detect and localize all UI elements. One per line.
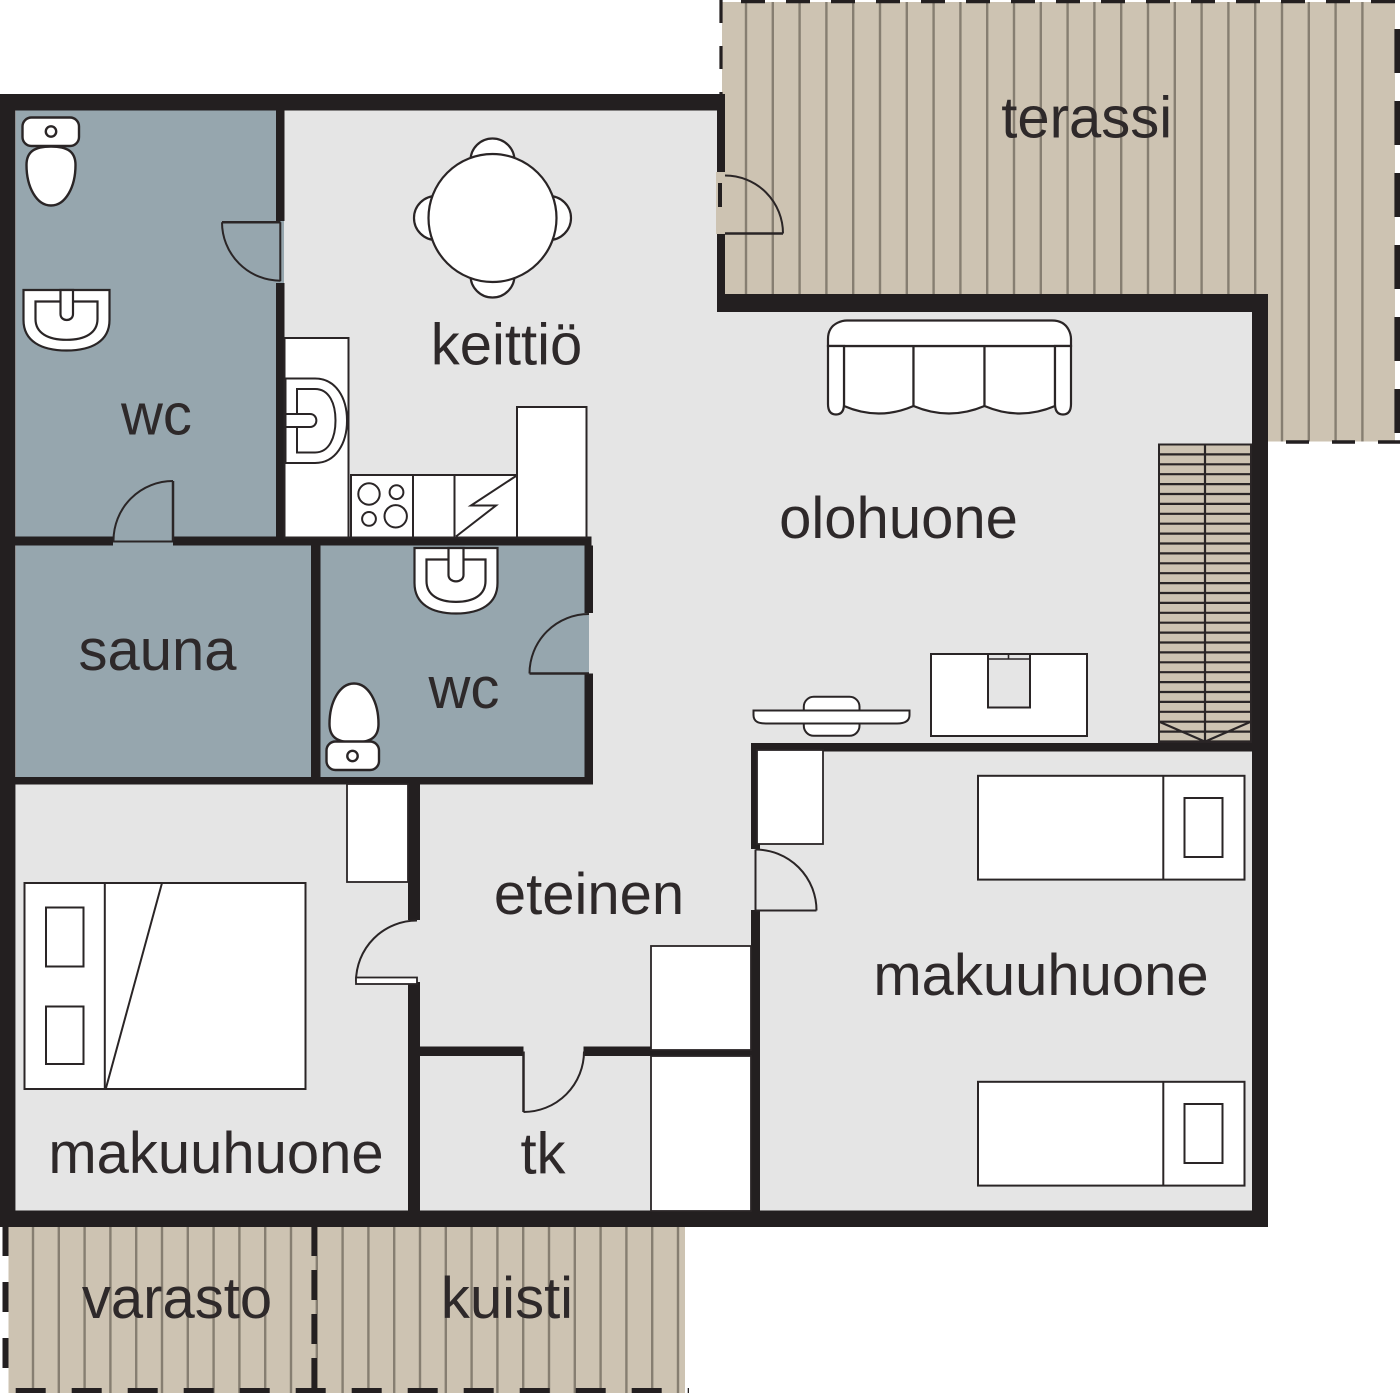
svg-text:makuuhuone: makuuhuone (48, 1121, 383, 1186)
svg-text:keittiö: keittiö (431, 313, 583, 378)
svg-text:eteinen: eteinen (494, 862, 684, 927)
svg-text:terassi: terassi (1001, 85, 1172, 150)
svg-text:wc: wc (428, 656, 500, 721)
svg-text:varasto: varasto (82, 1266, 272, 1331)
svg-text:kuisti: kuisti (441, 1266, 573, 1331)
svg-text:makuuhuone: makuuhuone (873, 943, 1208, 1008)
svg-text:wc: wc (120, 383, 192, 448)
svg-text:olohuone: olohuone (779, 486, 1018, 551)
svg-text:sauna: sauna (78, 618, 237, 683)
svg-text:tk: tk (520, 1121, 566, 1186)
